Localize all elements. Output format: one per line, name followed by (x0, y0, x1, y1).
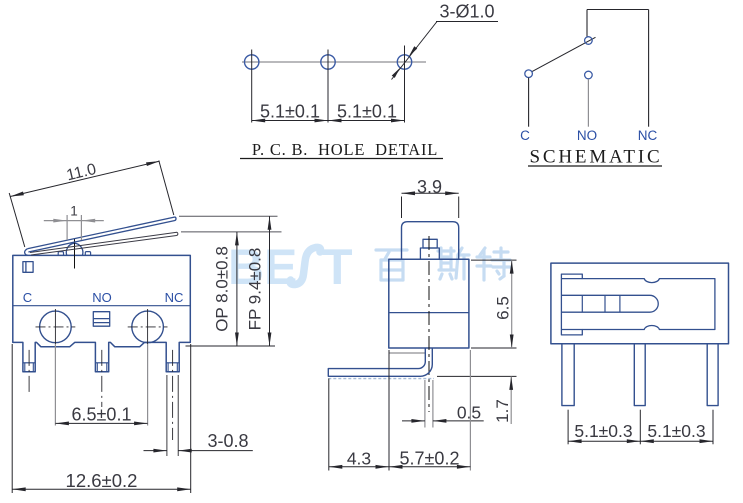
svg-text:3-Ø1.0: 3-Ø1.0 (439, 2, 494, 22)
svg-text:NO: NO (92, 290, 112, 305)
svg-text:1.7: 1.7 (493, 399, 512, 423)
svg-text:6.5: 6.5 (494, 296, 513, 320)
svg-text:T: T (322, 239, 353, 295)
svg-text:5.7±0.2: 5.7±0.2 (400, 449, 460, 469)
svg-text:FP 9.4±0.8: FP 9.4±0.8 (246, 248, 265, 331)
svg-text:C: C (520, 128, 530, 143)
svg-text:0.5: 0.5 (457, 403, 481, 423)
svg-text:SCHEMATIC: SCHEMATIC (530, 147, 663, 168)
svg-text:3-0.8: 3-0.8 (207, 431, 248, 451)
svg-text:3.9: 3.9 (417, 177, 442, 197)
svg-text:NC: NC (165, 290, 184, 305)
svg-text:C: C (23, 290, 32, 305)
svg-text:11.0: 11.0 (65, 161, 98, 184)
svg-text:5.1±0.1: 5.1±0.1 (337, 102, 397, 122)
svg-text:P. C. B. HOLE DETAIL: P. C. B. HOLE DETAIL (252, 140, 438, 159)
svg-text:5.1±0.3: 5.1±0.3 (647, 421, 705, 441)
svg-text:12.6±0.2: 12.6±0.2 (66, 470, 138, 491)
svg-text:NO: NO (577, 128, 597, 143)
svg-text:6.5±0.1: 6.5±0.1 (72, 405, 132, 425)
svg-text:NC: NC (638, 128, 658, 143)
svg-text:1: 1 (70, 204, 78, 219)
svg-text:5.1±0.1: 5.1±0.1 (260, 102, 320, 122)
svg-text:OP 8.0±0.8: OP 8.0±0.8 (213, 246, 232, 332)
svg-text:4.3: 4.3 (347, 449, 371, 469)
svg-text:5.1±0.3: 5.1±0.3 (574, 421, 632, 441)
